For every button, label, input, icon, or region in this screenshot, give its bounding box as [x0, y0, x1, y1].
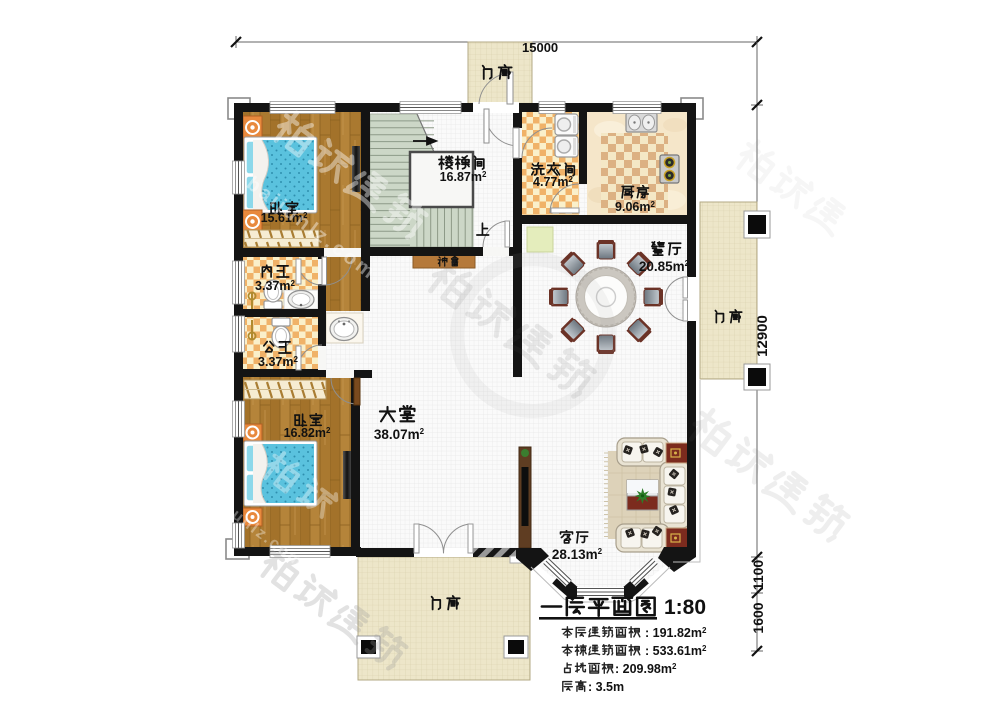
svg-text:1:80: 1:80	[664, 596, 706, 619]
svg-text:3.37m2: 3.37m2	[258, 355, 298, 369]
svg-text:16.87m2: 16.87m2	[440, 170, 487, 184]
svg-text:28.13m2: 28.13m2	[552, 547, 603, 562]
svg-text:16.82m2: 16.82m2	[284, 426, 331, 440]
svg-text:1100: 1100	[750, 560, 766, 591]
svg-text:20.85m2: 20.85m2	[639, 259, 690, 274]
svg-text:38.07m2: 38.07m2	[374, 427, 425, 442]
svg-text:: 533.61m2: : 533.61m2	[645, 644, 707, 658]
svg-text:4.77m2: 4.77m2	[533, 175, 573, 189]
svg-text:15000: 15000	[522, 40, 558, 55]
svg-text:: 191.82m2: : 191.82m2	[645, 626, 707, 640]
svg-text:: 3.5m: : 3.5m	[588, 680, 624, 694]
svg-text:3.37m2: 3.37m2	[255, 279, 295, 293]
svg-text:: 209.98m2: : 209.98m2	[615, 662, 677, 676]
svg-text:1600: 1600	[750, 602, 766, 633]
svg-text:9.06m2: 9.06m2	[615, 200, 655, 214]
